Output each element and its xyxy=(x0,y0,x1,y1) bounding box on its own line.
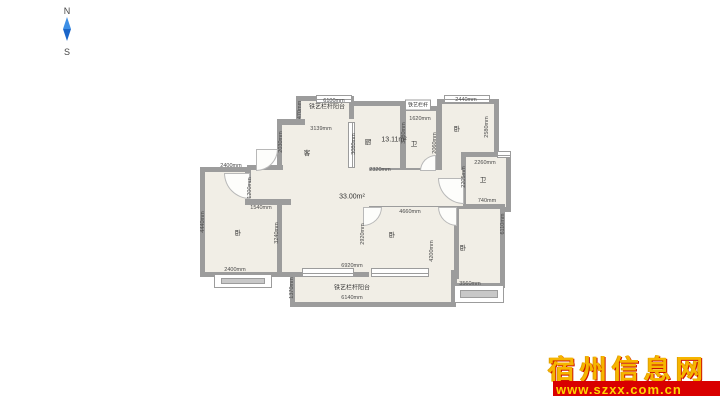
dimension-label: 2580mm xyxy=(484,116,490,137)
dimension-label: 1620mm xyxy=(409,116,430,122)
room-label: 卧 xyxy=(235,227,242,237)
dimension-label: 740mm xyxy=(478,198,496,204)
dimension-label: 4200mm xyxy=(429,240,435,261)
dimension-label: 6110mm xyxy=(500,214,506,235)
window-bath-right xyxy=(497,151,511,158)
compass-north-label: N xyxy=(54,6,80,16)
watermark-url-bar: www.szxx.com.cn xyxy=(553,381,720,396)
window-living-bottom xyxy=(302,268,354,277)
room-label: 卧 xyxy=(454,123,461,133)
window-bath-right-glass xyxy=(498,155,510,156)
dimension-label: 3080mm xyxy=(351,133,357,154)
dimension-label: 2400mm xyxy=(220,163,241,169)
dimension-label: 4660mm xyxy=(399,209,420,215)
compass-needle-icon xyxy=(54,16,80,42)
dimension-label: 1370mm xyxy=(289,277,295,298)
dimension-label: 2030mm xyxy=(278,131,284,152)
dimension-label: 2320mm xyxy=(369,167,390,173)
area-label: 33.00m² xyxy=(339,194,365,201)
dimension-label: 1200mm xyxy=(247,177,253,198)
compass-south-label: S xyxy=(54,47,80,57)
floor-plan-page: N S 铁艺栏杆阳台铁艺栏杆阳台铁艺栏杆卧客厨卫卧卫卧卧13.11m²33.00… xyxy=(0,0,720,405)
compass: N S xyxy=(54,6,80,57)
bay-window-bottom-right-sill xyxy=(460,290,498,298)
bay-window-bottom-right xyxy=(454,285,504,303)
room-label: 卫 xyxy=(411,138,418,148)
bay-window-bottom-left-sill xyxy=(221,278,266,284)
dimension-label: 3280mm xyxy=(401,122,407,143)
dimension-label: 470mm xyxy=(297,101,303,119)
dimension-label: 2920mm xyxy=(360,223,366,244)
window-bedroom-middle-bottom xyxy=(371,268,429,277)
dimension-label: 4440mm xyxy=(200,211,206,232)
room-label: 厨 xyxy=(365,136,372,146)
room-label: 卧 xyxy=(389,229,396,239)
bay-window-bottom-left xyxy=(214,274,272,288)
watermark-url: www.szxx.com.cn xyxy=(556,382,682,397)
dimension-label: 2260mm xyxy=(474,160,495,166)
dimension-label: 3240mm xyxy=(274,222,280,243)
window-bedroom-middle-bottom-glass xyxy=(372,273,428,274)
dimension-label: 6140mm xyxy=(341,295,362,301)
dimension-label: 2400mm xyxy=(224,267,245,273)
dimension-label: 6100mm xyxy=(323,98,344,104)
dimension-label: 2440mm xyxy=(455,97,476,103)
window-living-bottom-glass xyxy=(303,273,353,274)
box-label: 铁艺栏杆 xyxy=(405,100,431,111)
room-label: 卫 xyxy=(480,174,487,184)
watermark: 宿州信息网 www.szxx.com.cn xyxy=(546,346,720,402)
dimension-label: 3560mm xyxy=(459,281,480,287)
living-top-stub xyxy=(277,119,305,125)
room-label: 卧 xyxy=(460,242,467,252)
dimension-label: 6920mm xyxy=(341,263,362,269)
room-label: 客 xyxy=(304,147,311,157)
dimension-label: 2205mm xyxy=(461,166,467,187)
dimension-label: 3139mm xyxy=(310,126,331,132)
dimension-label: 2060mm xyxy=(432,132,438,153)
balcony-label: 铁艺栏杆阳台 xyxy=(334,283,370,292)
dimension-label: 1540mm xyxy=(250,205,271,211)
